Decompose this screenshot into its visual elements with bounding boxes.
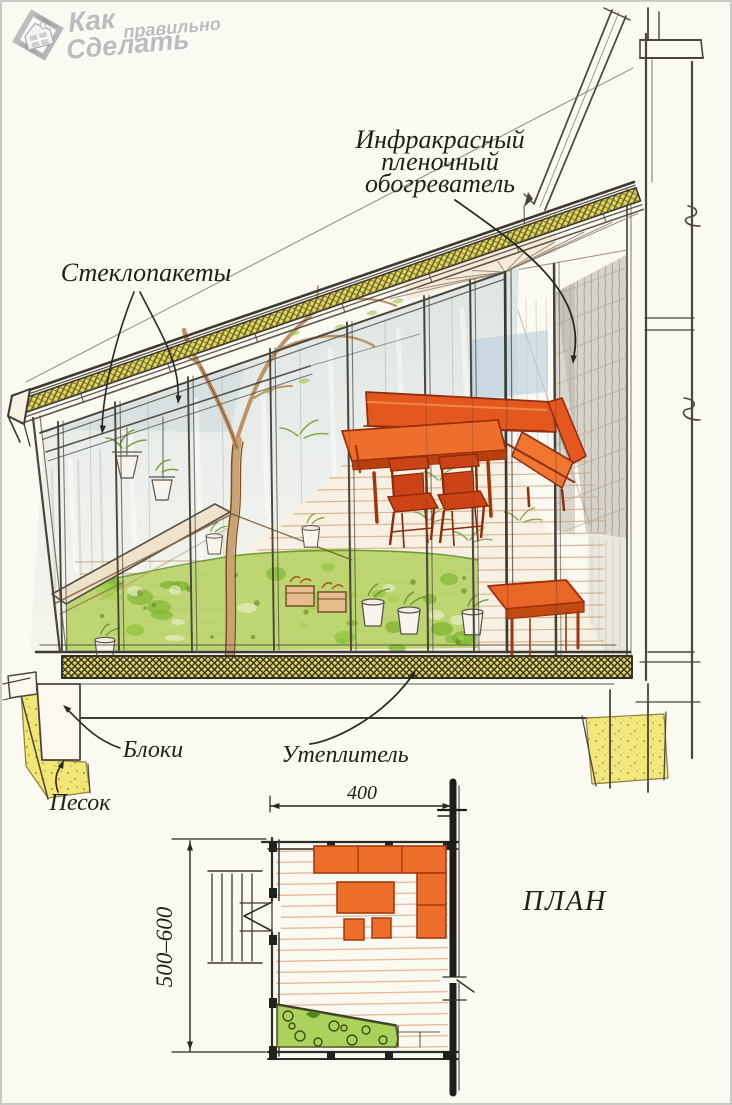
svg-text:Стеклопакеты: Стеклопакеты: [61, 258, 231, 287]
svg-text:ПЛАН: ПЛАН: [522, 886, 608, 917]
svg-text:400: 400: [347, 782, 377, 804]
svg-text:Блоки: Блоки: [122, 737, 183, 763]
svg-text:Песок: Песок: [49, 790, 112, 816]
svg-text:обогреватель: обогреватель: [365, 169, 515, 198]
svg-text:500–600: 500–600: [152, 906, 177, 987]
svg-text:Утеплитель: Утеплитель: [281, 742, 408, 768]
